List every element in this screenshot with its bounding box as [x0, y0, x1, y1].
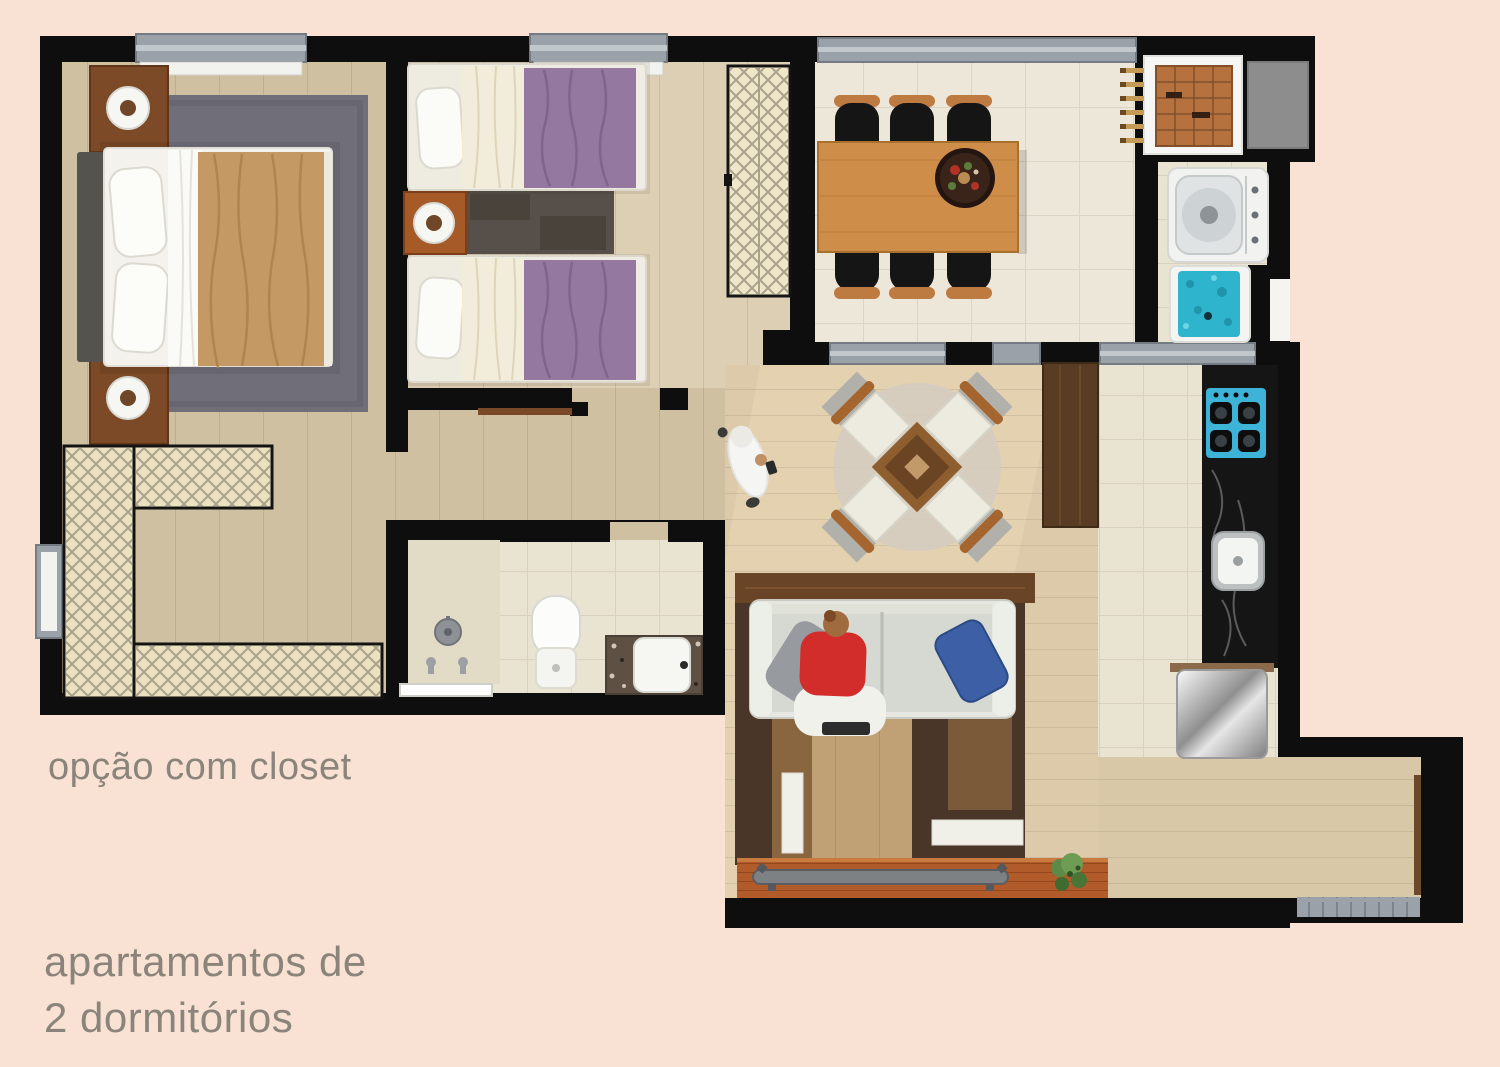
twin-blanket: [524, 68, 642, 188]
twin-nightstand: [404, 192, 466, 254]
laptop: [822, 722, 870, 735]
floorplan-drawing: [0, 0, 1500, 1067]
headboard: [77, 152, 104, 362]
shower-glass: [400, 684, 492, 696]
floorplan-canvas: opção com closet apartamentos de 2 dormi…: [0, 0, 1500, 1067]
bathroom-door-opening: [610, 522, 668, 540]
twin-bed-bottom: [406, 254, 650, 386]
closet-window: [36, 545, 62, 638]
sofa: [750, 600, 1015, 736]
divider-window-1: [830, 343, 945, 364]
refrigerator: [1170, 663, 1274, 758]
apartment-type-line2: 2 dormitórios: [44, 990, 367, 1046]
balcony-deck: [737, 853, 1108, 898]
wardrobe: [724, 66, 790, 296]
nightstand-top: [90, 66, 168, 152]
faucet-icon: [680, 661, 688, 669]
coffee-table: [932, 820, 1023, 845]
closet-shelf-top: [134, 446, 272, 508]
twin-blanket: [524, 260, 642, 380]
laundry-door-opening: [1270, 279, 1290, 341]
cooktop: [1206, 388, 1266, 458]
divider-window-3: [1100, 343, 1255, 364]
closet-option-label: opção com closet: [48, 746, 352, 789]
double-bed: [77, 142, 340, 374]
utility-unit: [1248, 62, 1308, 148]
laundry-tank: [1170, 266, 1250, 342]
side-table: [782, 773, 803, 853]
cabinet-divider: [1043, 363, 1098, 527]
apartment-type-line1: apartamentos de: [44, 934, 367, 990]
washing-machine: [1168, 168, 1268, 262]
pillow: [111, 262, 169, 353]
entry-door-line: [1414, 775, 1421, 895]
toilet: [532, 596, 580, 688]
vanity-sink: [606, 636, 702, 694]
pillow: [415, 277, 464, 360]
dining-window: [818, 38, 1136, 62]
bedroom2-door-leaf: [478, 408, 572, 415]
apartment-type-label: apartamentos de 2 dormitórios: [44, 934, 367, 1047]
kitchen-sink: [1212, 532, 1264, 590]
twin-bed-top: [406, 62, 650, 194]
pillow: [108, 166, 167, 258]
master-bedroom: [77, 66, 368, 444]
shower-area: [408, 540, 500, 684]
closet-shelf-left: [64, 446, 134, 698]
pillow: [415, 87, 464, 170]
closet-shelf-bottom: [134, 644, 382, 698]
table-centerpiece: [935, 148, 995, 208]
divider-window-2: [993, 343, 1040, 364]
